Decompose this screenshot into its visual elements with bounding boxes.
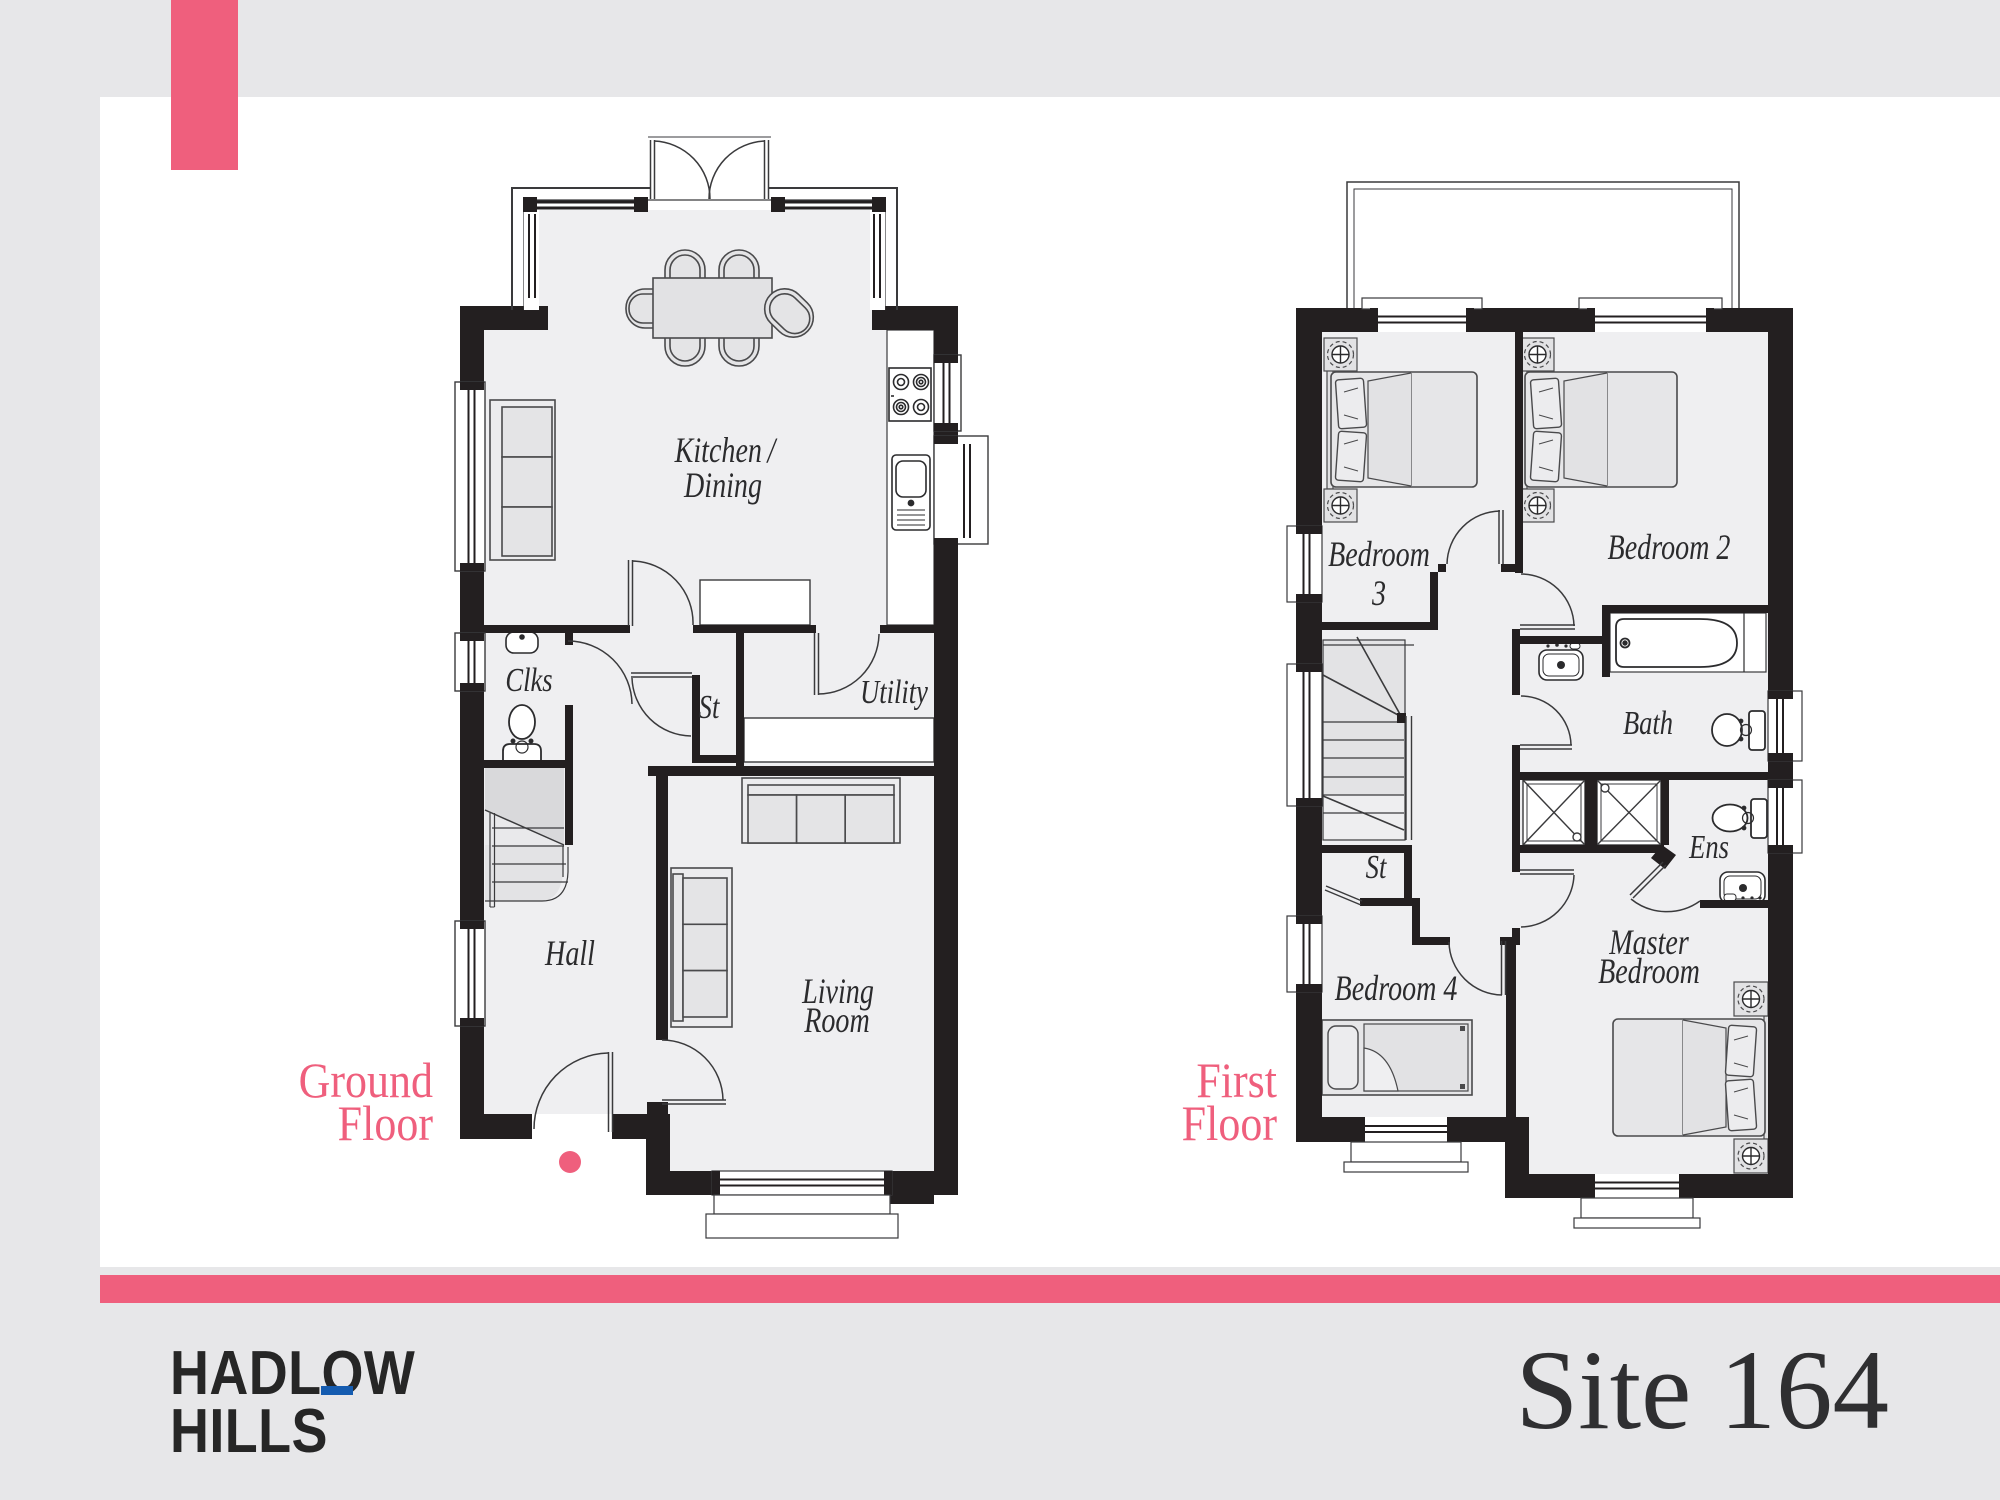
svg-text:Site 164: Site 164	[1515, 1328, 1889, 1453]
svg-text:Ens: Ens	[1688, 828, 1729, 866]
svg-text:HILLS: HILLS	[170, 1397, 328, 1466]
svg-text:Bedroom: Bedroom	[1328, 534, 1430, 574]
svg-text:Bedroom 2: Bedroom 2	[1608, 527, 1731, 567]
svg-text:Bedroom: Bedroom	[1598, 951, 1700, 991]
svg-text:Floor: Floor	[338, 1096, 434, 1151]
svg-text:3: 3	[1371, 573, 1386, 613]
svg-text:Floor: Floor	[1182, 1096, 1278, 1151]
svg-text:Room: Room	[803, 1000, 869, 1040]
svg-text:Utility: Utility	[860, 673, 928, 711]
svg-text:St: St	[699, 688, 721, 726]
svg-text:St: St	[1366, 848, 1388, 886]
svg-text:Bedroom 4: Bedroom 4	[1335, 968, 1458, 1008]
svg-text:Bath: Bath	[1623, 704, 1673, 742]
svg-text:Hall: Hall	[544, 933, 595, 973]
svg-text:Clks: Clks	[505, 661, 552, 699]
svg-text:Dining: Dining	[683, 465, 762, 505]
